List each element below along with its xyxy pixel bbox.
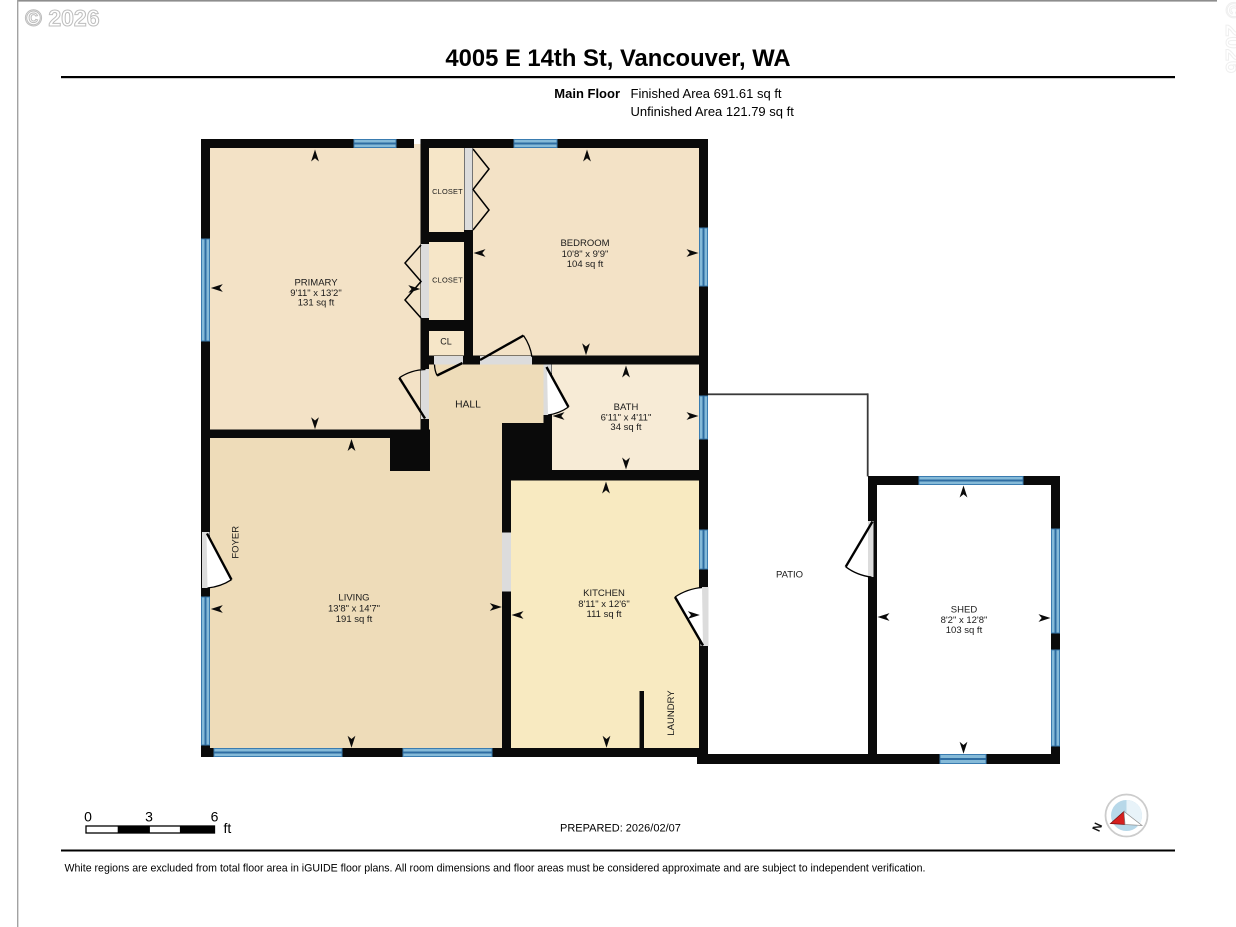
svg-text:BATH: BATH xyxy=(614,402,639,413)
svg-text:PRIMARY: PRIMARY xyxy=(294,278,338,289)
svg-text:FOYER: FOYER xyxy=(231,526,242,559)
svg-text:ft: ft xyxy=(224,820,232,836)
svg-text:LAUNDRY: LAUNDRY xyxy=(666,690,677,736)
svg-text:CLOSET: CLOSET xyxy=(432,275,463,284)
svg-text:191 sq ft: 191 sq ft xyxy=(336,614,373,625)
svg-text:Main Floor: Main Floor xyxy=(554,86,620,101)
svg-text:Unfinished Area 121.79 sq ft: Unfinished Area 121.79 sq ft xyxy=(631,104,795,119)
svg-text:13'8" x 14'7": 13'8" x 14'7" xyxy=(328,603,380,614)
svg-text:© 2026: © 2026 xyxy=(25,5,100,31)
svg-text:Finished Area 691.61 sq ft: Finished Area 691.61 sq ft xyxy=(631,86,782,101)
svg-text:4005 E 14th St, Vancouver, WA: 4005 E 14th St, Vancouver, WA xyxy=(445,45,790,72)
svg-text:CLOSET: CLOSET xyxy=(432,187,463,196)
svg-text:BEDROOM: BEDROOM xyxy=(560,238,609,249)
svg-text:N: N xyxy=(1091,821,1105,834)
svg-text:111 sq ft: 111 sq ft xyxy=(586,609,621,620)
svg-text:131 sq ft: 131 sq ft xyxy=(298,298,335,309)
svg-text:CL: CL xyxy=(440,337,452,347)
svg-text:White regions are excluded fro: White regions are excluded from total fl… xyxy=(65,863,926,875)
svg-text:34 sq ft: 34 sq ft xyxy=(610,422,642,433)
svg-text:LIVING: LIVING xyxy=(338,593,369,604)
svg-text:© 2026: © 2026 xyxy=(1221,2,1236,73)
svg-text:3: 3 xyxy=(145,809,153,825)
svg-text:6: 6 xyxy=(211,809,219,825)
svg-text:0: 0 xyxy=(84,809,92,825)
svg-text:PATIO: PATIO xyxy=(776,569,803,580)
svg-text:HALL: HALL xyxy=(455,399,481,410)
svg-text:PREPARED: 2026/02/07: PREPARED: 2026/02/07 xyxy=(560,823,681,835)
svg-text:104 sq ft: 104 sq ft xyxy=(567,259,604,270)
svg-text:103 sq ft: 103 sq ft xyxy=(946,625,983,636)
svg-text:KITCHEN: KITCHEN xyxy=(583,588,625,599)
